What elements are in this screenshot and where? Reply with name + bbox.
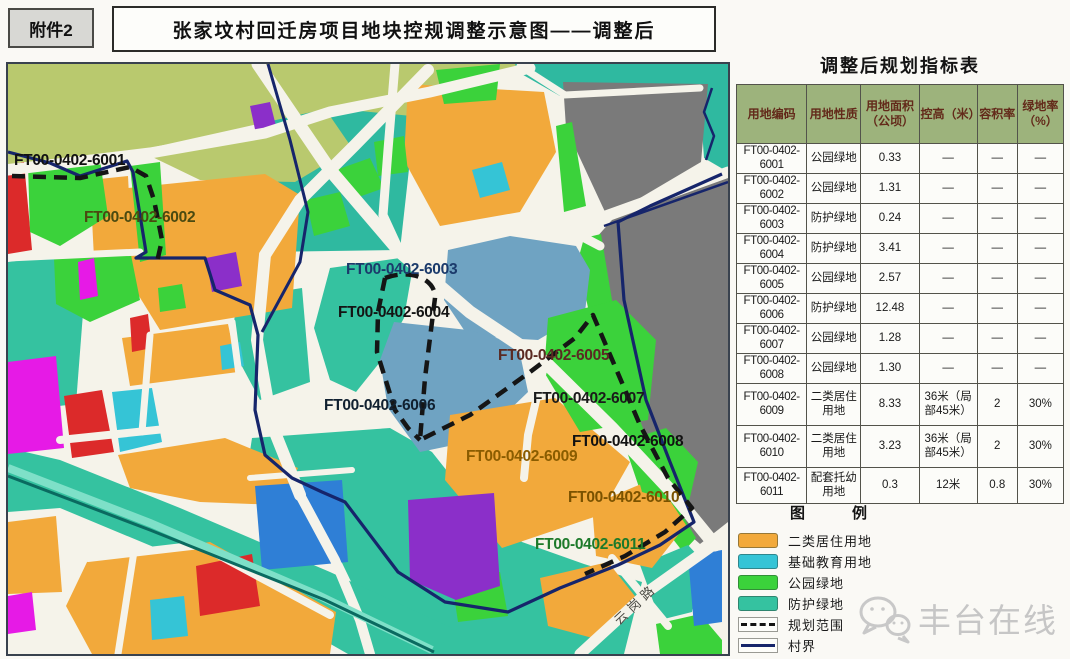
watermark: 丰台在线 <box>856 592 1058 644</box>
table-row: FT00-0402-6003 防护绿地 0.24 — — — <box>737 204 1064 234</box>
code-num: 6005 <box>760 279 784 291</box>
cell-use: 公园绿地 <box>807 324 861 354</box>
cell-use: 公园绿地 <box>807 264 861 294</box>
cell-area: 3.23 <box>861 426 919 468</box>
plot-label-6006: FT00-0402-6006 <box>324 397 436 414</box>
education-swatch <box>738 554 778 569</box>
cell-area: 1.30 <box>861 354 919 384</box>
cell-use: 防护绿地 <box>807 234 861 264</box>
cell-use: 防护绿地 <box>807 294 861 324</box>
cell-green: — <box>1017 174 1063 204</box>
cell-code: FT00-0402-6008 <box>737 354 807 384</box>
cell-code: FT00-0402-6002 <box>737 174 807 204</box>
legend-label: 村界 <box>788 636 816 655</box>
cell-area: 0.24 <box>861 204 919 234</box>
cell-code: FT00-0402-6004 <box>737 234 807 264</box>
table-row: FT00-0402-6006 防护绿地 12.48 — — — <box>737 294 1064 324</box>
cell-far: 0.8 <box>977 468 1017 504</box>
parcel <box>158 284 186 312</box>
cell-use: 二类居住用地 <box>807 426 861 468</box>
cell-code: FT00-0402-6010 <box>737 426 807 468</box>
cell-area: 0.3 <box>861 468 919 504</box>
cell-green: — <box>1017 234 1063 264</box>
table-row: FT00-0402-6009 二类居住用地 8.33 36米（局部45米） 2 … <box>737 384 1064 426</box>
code-num: 6007 <box>760 339 784 351</box>
cell-far: — <box>977 354 1017 384</box>
cell-use: 配套托幼用地 <box>807 468 861 504</box>
code-prefix: FT00-0402- <box>744 235 800 247</box>
cell-code: FT00-0402-6011 <box>737 468 807 504</box>
cell-far: — <box>977 144 1017 174</box>
legend-item-education: 基础教育用地 <box>738 551 1038 571</box>
cell-area: 12.48 <box>861 294 919 324</box>
protective-swatch <box>738 596 778 611</box>
cell-far: — <box>977 294 1017 324</box>
cell-far: — <box>977 324 1017 354</box>
code-prefix: FT00-0402- <box>744 355 800 367</box>
cell-area: 3.41 <box>861 234 919 264</box>
legend-label: 二类居住用地 <box>788 531 872 550</box>
cell-green: 30% <box>1017 468 1063 504</box>
cell-green: — <box>1017 324 1063 354</box>
plot-label-6005: FT00-0402-6005 <box>498 347 610 364</box>
table-row: FT00-0402-6002 公园绿地 1.31 — — — <box>737 174 1064 204</box>
cell-far: — <box>977 234 1017 264</box>
table-row: FT00-0402-6004 防护绿地 3.41 — — — <box>737 234 1064 264</box>
code-prefix: FT00-0402- <box>744 265 800 277</box>
cell-code: FT00-0402-6005 <box>737 264 807 294</box>
cell-code: FT00-0402-6001 <box>737 144 807 174</box>
park-swatch <box>738 575 778 590</box>
planning-map-svg: 云岗路 FT00-0402-6001 FT00-0402-6002 FT00-0… <box>8 64 728 654</box>
cell-code: FT00-0402-6009 <box>737 384 807 426</box>
cell-far: 2 <box>977 426 1017 468</box>
cell-use: 二类居住用地 <box>807 384 861 426</box>
code-num: 6009 <box>760 405 784 417</box>
plot-label-6001: FT00-0402-6001 <box>14 152 126 169</box>
plot-label-6008: FT00-0402-6008 <box>572 433 684 450</box>
table-row: FT00-0402-6005 公园绿地 2.57 — — — <box>737 264 1064 294</box>
cell-green: — <box>1017 294 1063 324</box>
code-num: 6010 <box>760 447 784 459</box>
indicator-table: 用地编码 用地性质 用地面积（公顷） 控高（米） 容积率 绿地率（%） FT00… <box>736 84 1064 504</box>
code-num: 6003 <box>760 219 784 231</box>
code-prefix: FT00-0402- <box>744 391 800 403</box>
code-prefix: FT00-0402- <box>744 295 800 307</box>
col-header-far: 容积率 <box>977 85 1017 144</box>
cell-green: — <box>1017 144 1063 174</box>
code-num: 6004 <box>760 249 784 261</box>
cell-far: — <box>977 264 1017 294</box>
parcel <box>8 592 36 634</box>
cell-area: 2.57 <box>861 264 919 294</box>
cell-area: 1.28 <box>861 324 919 354</box>
dashed-line-swatch <box>738 617 778 632</box>
legend-label: 规划范围 <box>788 615 844 634</box>
code-num: 6006 <box>760 309 784 321</box>
wechat-icon <box>856 592 912 644</box>
cell-green: — <box>1017 354 1063 384</box>
table-row: FT00-0402-6010 二类居住用地 3.23 36米（局部45米） 2 … <box>737 426 1064 468</box>
legend-item-residential: 二类居住用地 <box>738 530 1038 550</box>
cell-code: FT00-0402-6003 <box>737 204 807 234</box>
code-num: 6002 <box>760 189 784 201</box>
col-header-use: 用地性质 <box>807 85 861 144</box>
legend-label: 防护绿地 <box>788 594 844 613</box>
code-num: 6011 <box>760 486 783 498</box>
residential-swatch <box>738 533 778 548</box>
watermark-text: 丰台在线 <box>918 594 1058 642</box>
col-header-area: 用地面积（公顷） <box>861 85 919 144</box>
code-num: 6001 <box>760 159 784 171</box>
cell-height: — <box>919 204 977 234</box>
code-num: 6008 <box>760 369 784 381</box>
cell-area: 8.33 <box>861 384 919 426</box>
cell-height: — <box>919 264 977 294</box>
cell-green: — <box>1017 204 1063 234</box>
col-header-code: 用地编码 <box>737 85 807 144</box>
cell-height: — <box>919 174 977 204</box>
parcel <box>150 596 188 640</box>
page-title: 张家坟村回迁房项目地块控规调整示意图——调整后 <box>112 6 716 52</box>
cell-use: 公园绿地 <box>807 144 861 174</box>
cell-area: 1.31 <box>861 174 919 204</box>
cell-height: — <box>919 144 977 174</box>
cell-use: 防护绿地 <box>807 204 861 234</box>
plot-label-6003: FT00-0402-6003 <box>346 261 458 278</box>
cell-far: 2 <box>977 384 1017 426</box>
cell-height: 36米（局部45米） <box>919 426 977 468</box>
col-header-green: 绿地率（%） <box>1017 85 1063 144</box>
cell-height: — <box>919 354 977 384</box>
cell-height: 12米 <box>919 468 977 504</box>
plot-label-6002: FT00-0402-6002 <box>84 209 195 226</box>
code-prefix: FT00-0402- <box>744 205 800 217</box>
code-prefix: FT00-0402- <box>744 433 800 445</box>
cell-use: 公园绿地 <box>807 354 861 384</box>
plot-label-6009: FT00-0402-6009 <box>466 448 578 465</box>
parcel <box>8 516 62 594</box>
table-row: FT00-0402-6011 配套托幼用地 0.3 12米 0.8 30% <box>737 468 1064 504</box>
cell-code: FT00-0402-6007 <box>737 324 807 354</box>
plot-label-6004: FT00-0402-6004 <box>338 304 450 321</box>
cell-height: — <box>919 294 977 324</box>
table-row: FT00-0402-6007 公园绿地 1.28 — — — <box>737 324 1064 354</box>
code-prefix: FT00-0402- <box>744 175 800 187</box>
cell-use: 公园绿地 <box>807 174 861 204</box>
cell-far: — <box>977 174 1017 204</box>
cell-far: — <box>977 204 1017 234</box>
cell-green: 30% <box>1017 384 1063 426</box>
cell-area: 0.33 <box>861 144 919 174</box>
cell-height: 36米（局部45米） <box>919 384 977 426</box>
table-row: FT00-0402-6001 公园绿地 0.33 — — — <box>737 144 1064 174</box>
plot-label-6010: FT00-0402-6010 <box>568 489 679 506</box>
planning-map: 云岗路 FT00-0402-6001 FT00-0402-6002 FT00-0… <box>8 64 728 654</box>
code-prefix: FT00-0402- <box>744 472 800 484</box>
code-prefix: FT00-0402- <box>744 145 800 157</box>
table-header-row: 用地编码 用地性质 用地面积（公顷） 控高（米） 容积率 绿地率（%） <box>737 85 1064 144</box>
table-row: FT00-0402-6008 公园绿地 1.30 — — — <box>737 354 1064 384</box>
cell-green: — <box>1017 264 1063 294</box>
parcel <box>8 356 64 454</box>
legend-title: 图 例 <box>790 502 883 523</box>
plot-label-6011: FT00-0402-6011 <box>535 536 646 553</box>
cell-height: — <box>919 234 977 264</box>
parcel <box>408 493 500 600</box>
solid-line-swatch <box>738 638 778 653</box>
cell-height: — <box>919 324 977 354</box>
legend-item-park: 公园绿地 <box>738 572 1038 592</box>
cell-code: FT00-0402-6006 <box>737 294 807 324</box>
cell-green: 30% <box>1017 426 1063 468</box>
code-prefix: FT00-0402- <box>744 325 800 337</box>
col-header-height: 控高（米） <box>919 85 977 144</box>
attachment-label: 附件2 <box>8 8 94 48</box>
plot-label-6007: FT00-0402-6007 <box>533 390 644 407</box>
legend-label: 公园绿地 <box>788 573 844 592</box>
parcel <box>206 252 242 292</box>
table-title: 调整后规划指标表 <box>760 52 1040 78</box>
legend-label: 基础教育用地 <box>788 552 872 571</box>
